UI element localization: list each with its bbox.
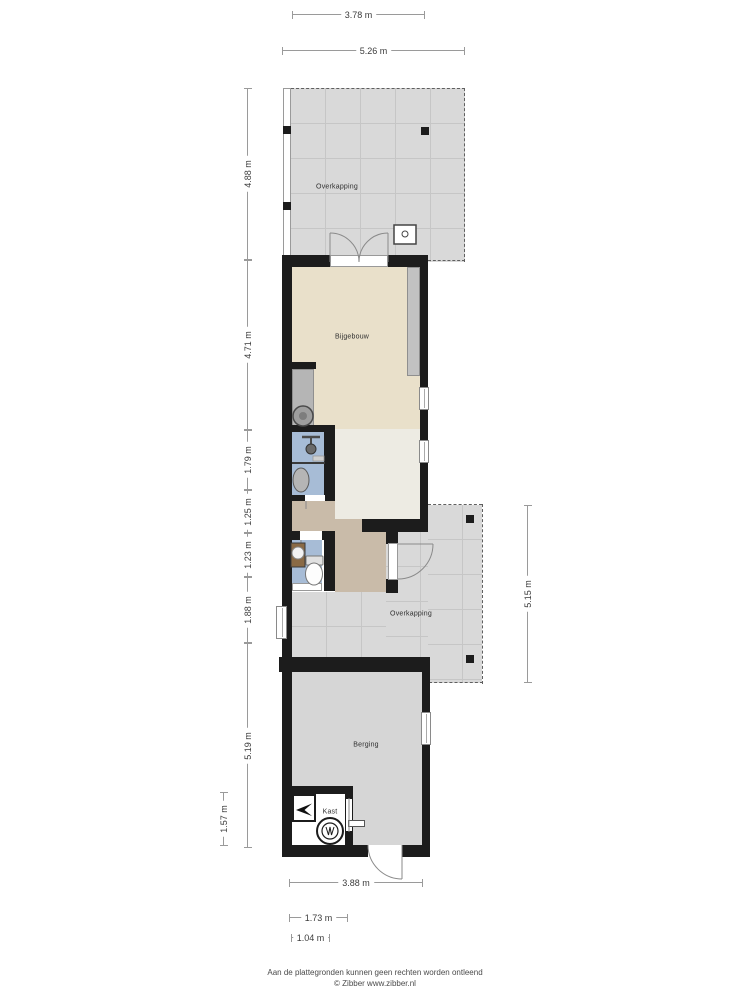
opening-wc-bottom [292, 583, 322, 591]
window-berging-right [421, 712, 431, 745]
dim-left-outer: 1.57 m [223, 792, 224, 846]
dim-left-5-label: 1.23 m [243, 537, 253, 573]
wall-kast-horizontal [282, 786, 352, 794]
dashed-edge-mid-right [482, 504, 483, 684]
dim-top-1-label: 3.78 m [341, 10, 377, 20]
dim-left-3-label: 1.79 m [243, 442, 253, 478]
post-top-left-2 [283, 202, 291, 210]
window-backroom-right [419, 440, 429, 463]
dim-bottom-1-label: 3.88 m [338, 878, 374, 888]
label-berging: Berging [353, 742, 379, 749]
dim-right-label: 5.15 m [523, 576, 533, 612]
footer-line1: Aan de plattegronden kunnen geen rechten… [0, 967, 750, 978]
dim-bottom-1: 3.88 m [289, 882, 423, 883]
dim-left-5: 1.23 m [247, 533, 248, 577]
window-bijgebouw-right [419, 387, 429, 410]
counter-alcove [292, 369, 314, 430]
door-gap-bathroom [305, 495, 325, 501]
wall-berging-right [422, 657, 430, 857]
dim-left-6-label: 1.88 m [243, 592, 253, 628]
dim-right: 5.15 m [527, 505, 528, 683]
floor-hall-left [292, 500, 335, 531]
door-gap-berging [368, 845, 402, 857]
floor-wc [292, 540, 322, 583]
post-top-left-1 [283, 126, 291, 134]
wall-left [282, 255, 292, 857]
dim-left-4: 1.25 m [247, 490, 248, 533]
dashed-edge-mid-bottom [429, 682, 483, 683]
post-mid-right-2 [466, 655, 474, 663]
floor-overkapping-top [291, 88, 465, 262]
label-overkapping-top: Overkapping [316, 184, 358, 191]
floor-kast [292, 794, 345, 845]
post-top-right [421, 127, 429, 135]
dim-bottom-3-label: 1.04 m [293, 933, 329, 943]
dim-left-1: 4.88 m [247, 88, 248, 260]
dim-left-3: 1.79 m [247, 430, 248, 490]
dim-left-7-label: 5.19 m [243, 728, 253, 764]
dim-left-6: 1.88 m [247, 577, 248, 643]
window-left-wall [276, 606, 287, 639]
dashed-edge-mid-top [428, 504, 482, 505]
dim-top-2-label: 5.26 m [356, 46, 392, 56]
dim-top-2: 5.26 m [282, 50, 465, 51]
wall-berging-top [279, 657, 430, 672]
floor-backroom [335, 429, 420, 520]
footer-disclaimer: Aan de plattegronden kunnen geen rechten… [0, 967, 750, 989]
dim-bottom-2-label: 1.73 m [301, 913, 337, 923]
floor-overkapping-mid-left [292, 592, 386, 658]
footer-line2: © Zibber www.zibber.nl [0, 978, 750, 989]
wall-wc-right [324, 531, 335, 591]
dim-left-outer-label: 1.57 m [219, 801, 229, 837]
floorplan-canvas: Overkapping Bijgebouw Overkapping Bergin… [0, 0, 750, 1000]
wall-backroom-bottom [362, 519, 428, 532]
dashed-edge-top-overkapping-bottom [428, 260, 465, 261]
wall-shower-divider [292, 462, 325, 464]
dim-left-7: 5.19 m [247, 643, 248, 848]
label-overkapping-mid: Overkapping [390, 611, 432, 618]
door-frame-hall [388, 543, 398, 580]
counter-right-bijgebouw [407, 267, 420, 376]
dim-bottom-2: 1.73 m [289, 917, 348, 918]
label-kast: Kast [323, 809, 338, 816]
dim-left-2: 4.71 m [247, 260, 248, 430]
door-gap-wc [300, 531, 322, 540]
dim-bottom-3: 1.04 m [291, 937, 330, 938]
dim-left-2-label: 4.71 m [243, 327, 253, 363]
french-door-threshold [330, 255, 388, 267]
dim-left-4-label: 1.25 m [243, 494, 253, 530]
dim-left-1-label: 4.88 m [243, 156, 253, 192]
wall-hall-right-lower [386, 579, 398, 593]
wall-bathroom-right [324, 425, 335, 501]
wall-alcove-stub [292, 362, 316, 369]
dim-top-1: 3.78 m [292, 14, 425, 15]
meter-box [348, 820, 365, 827]
label-bijgebouw: Bijgebouw [335, 334, 369, 341]
post-mid-right-1 [466, 515, 474, 523]
fence-wall-top-overkapping [283, 88, 291, 262]
wall-berging-bottom [282, 845, 430, 857]
